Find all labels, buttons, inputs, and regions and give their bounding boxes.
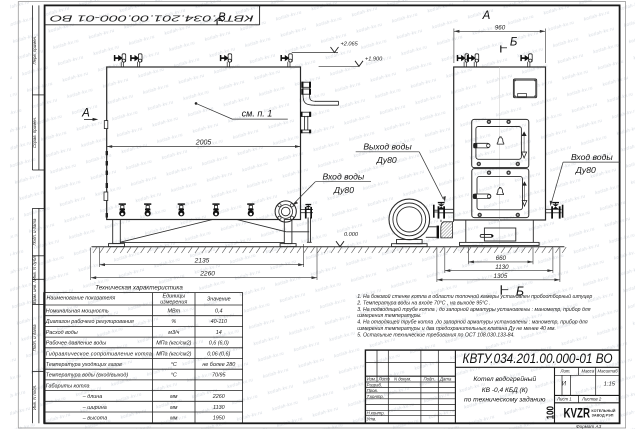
- svg-text:5. Остальные технические треб: 5. Остальные технические требования по О…: [357, 332, 515, 338]
- svg-text:– высота: – высота: [82, 416, 107, 422]
- svg-text:МПа (кгс/см2): МПа (кгс/см2): [156, 341, 191, 347]
- svg-text:Справ. примен.: Справ. примен.: [32, 117, 37, 148]
- svg-text:+2.065: +2.065: [341, 42, 359, 48]
- svg-text:Разраб.: Разраб.: [367, 382, 383, 387]
- svg-text:мм: мм: [170, 405, 178, 411]
- svg-text:Ду80: Ду80: [575, 165, 596, 175]
- svg-text:Подп. и дата: Подп. и дата: [32, 324, 37, 352]
- svg-text:960: 960: [495, 24, 506, 31]
- svg-text:Лист 1: Лист 1: [556, 397, 572, 402]
- svg-text:°С: °С: [171, 373, 177, 379]
- svg-text:Инв. N подл.: Инв. N подл.: [32, 385, 37, 410]
- svg-text:Т.контр.: Т.контр.: [367, 394, 384, 399]
- svg-text:Гидравлическое сопротивление к: Гидравлическое сопротивление котла: [46, 351, 152, 357]
- svg-text:100: 100: [545, 406, 557, 419]
- svg-text:Дата: Дата: [439, 377, 452, 382]
- svg-text:°С: °С: [171, 362, 177, 368]
- svg-text:Подп. и дата: Подп. и дата: [32, 218, 37, 246]
- svg-text:Утв.: Утв.: [367, 416, 377, 421]
- svg-text:Перв. примен.: Перв. примен.: [32, 36, 37, 65]
- svg-text:Инв. N дубл.: Инв. N дубл.: [32, 255, 37, 280]
- svg-text:не более 280: не более 280: [202, 362, 235, 368]
- svg-text:4. На отводящей трубе котла ,: 4. На отводящей трубе котла ,до запорной…: [357, 319, 588, 326]
- svg-text:мм: мм: [170, 394, 178, 400]
- svg-text:Н.контр.: Н.контр.: [367, 411, 385, 416]
- svg-text:А: А: [482, 10, 491, 22]
- svg-text:14: 14: [216, 330, 222, 336]
- svg-text:Б: Б: [510, 36, 518, 48]
- svg-text:Масса: Масса: [582, 369, 595, 374]
- svg-text:2260: 2260: [212, 394, 225, 400]
- svg-text:Взам. инв. N: Взам. инв. N: [32, 278, 37, 304]
- svg-text:Ду80: Ду80: [333, 185, 354, 195]
- svg-text:1130: 1130: [213, 405, 225, 411]
- svg-text:ЗАВОД РЭП: ЗАВОД РЭП: [592, 414, 614, 418]
- svg-text:Температура воды (вход/выход): Температура воды (вход/выход): [46, 373, 129, 379]
- svg-text:N докум.: N докум.: [394, 377, 411, 382]
- svg-text:см. п. 1: см. п. 1: [242, 109, 273, 119]
- svg-text:Пров.: Пров.: [367, 388, 378, 393]
- svg-text:Лист: Лист: [378, 377, 390, 382]
- svg-text:измерения температуры и два пр: измерения температуры и два предохраните…: [357, 326, 556, 332]
- svg-text:Листов 2: Листов 2: [581, 397, 602, 402]
- svg-text:70/95: 70/95: [212, 373, 226, 379]
- svg-text:0,06 (0,6): 0,06 (0,6): [207, 351, 230, 357]
- svg-text:измерения температуры.: измерения температуры.: [357, 313, 422, 319]
- svg-text:1950: 1950: [213, 416, 225, 422]
- svg-text:Масштаб: Масштаб: [598, 369, 619, 374]
- svg-text:МВт: МВт: [168, 309, 181, 315]
- svg-text:Номинальная мощность: Номинальная мощность: [46, 309, 109, 315]
- svg-text:0.000: 0.000: [344, 232, 359, 238]
- svg-text:%: %: [171, 319, 176, 325]
- svg-text:2260: 2260: [199, 271, 215, 278]
- svg-text:1. На боковой стенке котла в: 1. На боковой стенке котла в области топ…: [357, 293, 592, 300]
- svg-text:Подп.: Подп.: [424, 377, 435, 382]
- svg-text:0,6 (6,0): 0,6 (6,0): [209, 341, 229, 347]
- svg-text:– длина: – длина: [82, 394, 102, 400]
- svg-text:– ширина: – ширина: [82, 405, 107, 411]
- svg-text:Вход воды: Вход воды: [323, 172, 365, 182]
- svg-text:2. Температура воды на входе: 2. Температура воды на входе 70°С , на в…: [356, 300, 490, 306]
- svg-text:измерения: измерения: [160, 300, 187, 306]
- svg-text:Диапазон рабочего регулировани: Диапазон рабочего регулирования: [45, 319, 134, 325]
- svg-text:А: А: [81, 108, 90, 120]
- svg-text:660: 660: [496, 255, 507, 262]
- svg-text:1:15: 1:15: [604, 382, 616, 388]
- svg-text:м3/ч: м3/ч: [168, 330, 179, 336]
- svg-text:КВТУ.034.201.00.000-01 ВО: КВТУ.034.201.00.000-01 ВО: [463, 351, 613, 366]
- svg-text:Изм.: Изм.: [367, 377, 376, 382]
- svg-text:Лит.: Лит.: [560, 369, 571, 374]
- svg-text:Котел водогрейный: Котел водогрейный: [473, 375, 536, 383]
- svg-text:1130: 1130: [495, 264, 509, 271]
- svg-text:МПа (кгс/см2): МПа (кгс/см2): [156, 351, 191, 357]
- svg-text:Ду80: Ду80: [376, 155, 397, 165]
- svg-text:Температура уходящих газов: Температура уходящих газов: [46, 362, 122, 368]
- svg-text:И: И: [562, 381, 567, 387]
- svg-text:Рабочее давление воды: Рабочее давление воды: [46, 341, 106, 347]
- svg-text:КВ -0,4 КБД (К): КВ -0,4 КБД (К): [482, 387, 528, 394]
- svg-text:+1.900: +1.900: [365, 57, 383, 63]
- svg-text:КОТЕЛЬНЫЙ: КОТЕЛЬНЫЙ: [591, 409, 615, 413]
- svg-text:3. На подводящей трубе котла: 3. На подводящей трубе котла , до запорн…: [357, 306, 591, 313]
- svg-text:2005: 2005: [195, 140, 212, 147]
- svg-text:В: В: [218, 12, 226, 24]
- svg-text:Габариты котла: Габариты котла: [46, 383, 90, 389]
- svg-text:40-110: 40-110: [211, 319, 227, 325]
- svg-text:Вход воды: Вход воды: [571, 152, 613, 162]
- svg-text:Значение: Значение: [207, 297, 231, 303]
- svg-text:по техническому заданию: по техническому заданию: [464, 396, 546, 404]
- svg-text:Наименование показателя: Наименование показателя: [47, 296, 116, 302]
- svg-text:мм: мм: [170, 416, 178, 422]
- svg-text:Расход воды: Расход воды: [46, 330, 78, 336]
- svg-text:2135: 2135: [194, 258, 210, 265]
- svg-text:0,4: 0,4: [215, 309, 223, 315]
- svg-text:Выход воды: Выход воды: [363, 141, 412, 151]
- svg-text:Техническая характеристика: Техническая характеристика: [95, 284, 183, 291]
- svg-text:1305: 1305: [494, 273, 508, 280]
- svg-text:KVZR: KVZR: [564, 405, 591, 421]
- svg-text:Формат А3: Формат А3: [576, 424, 602, 429]
